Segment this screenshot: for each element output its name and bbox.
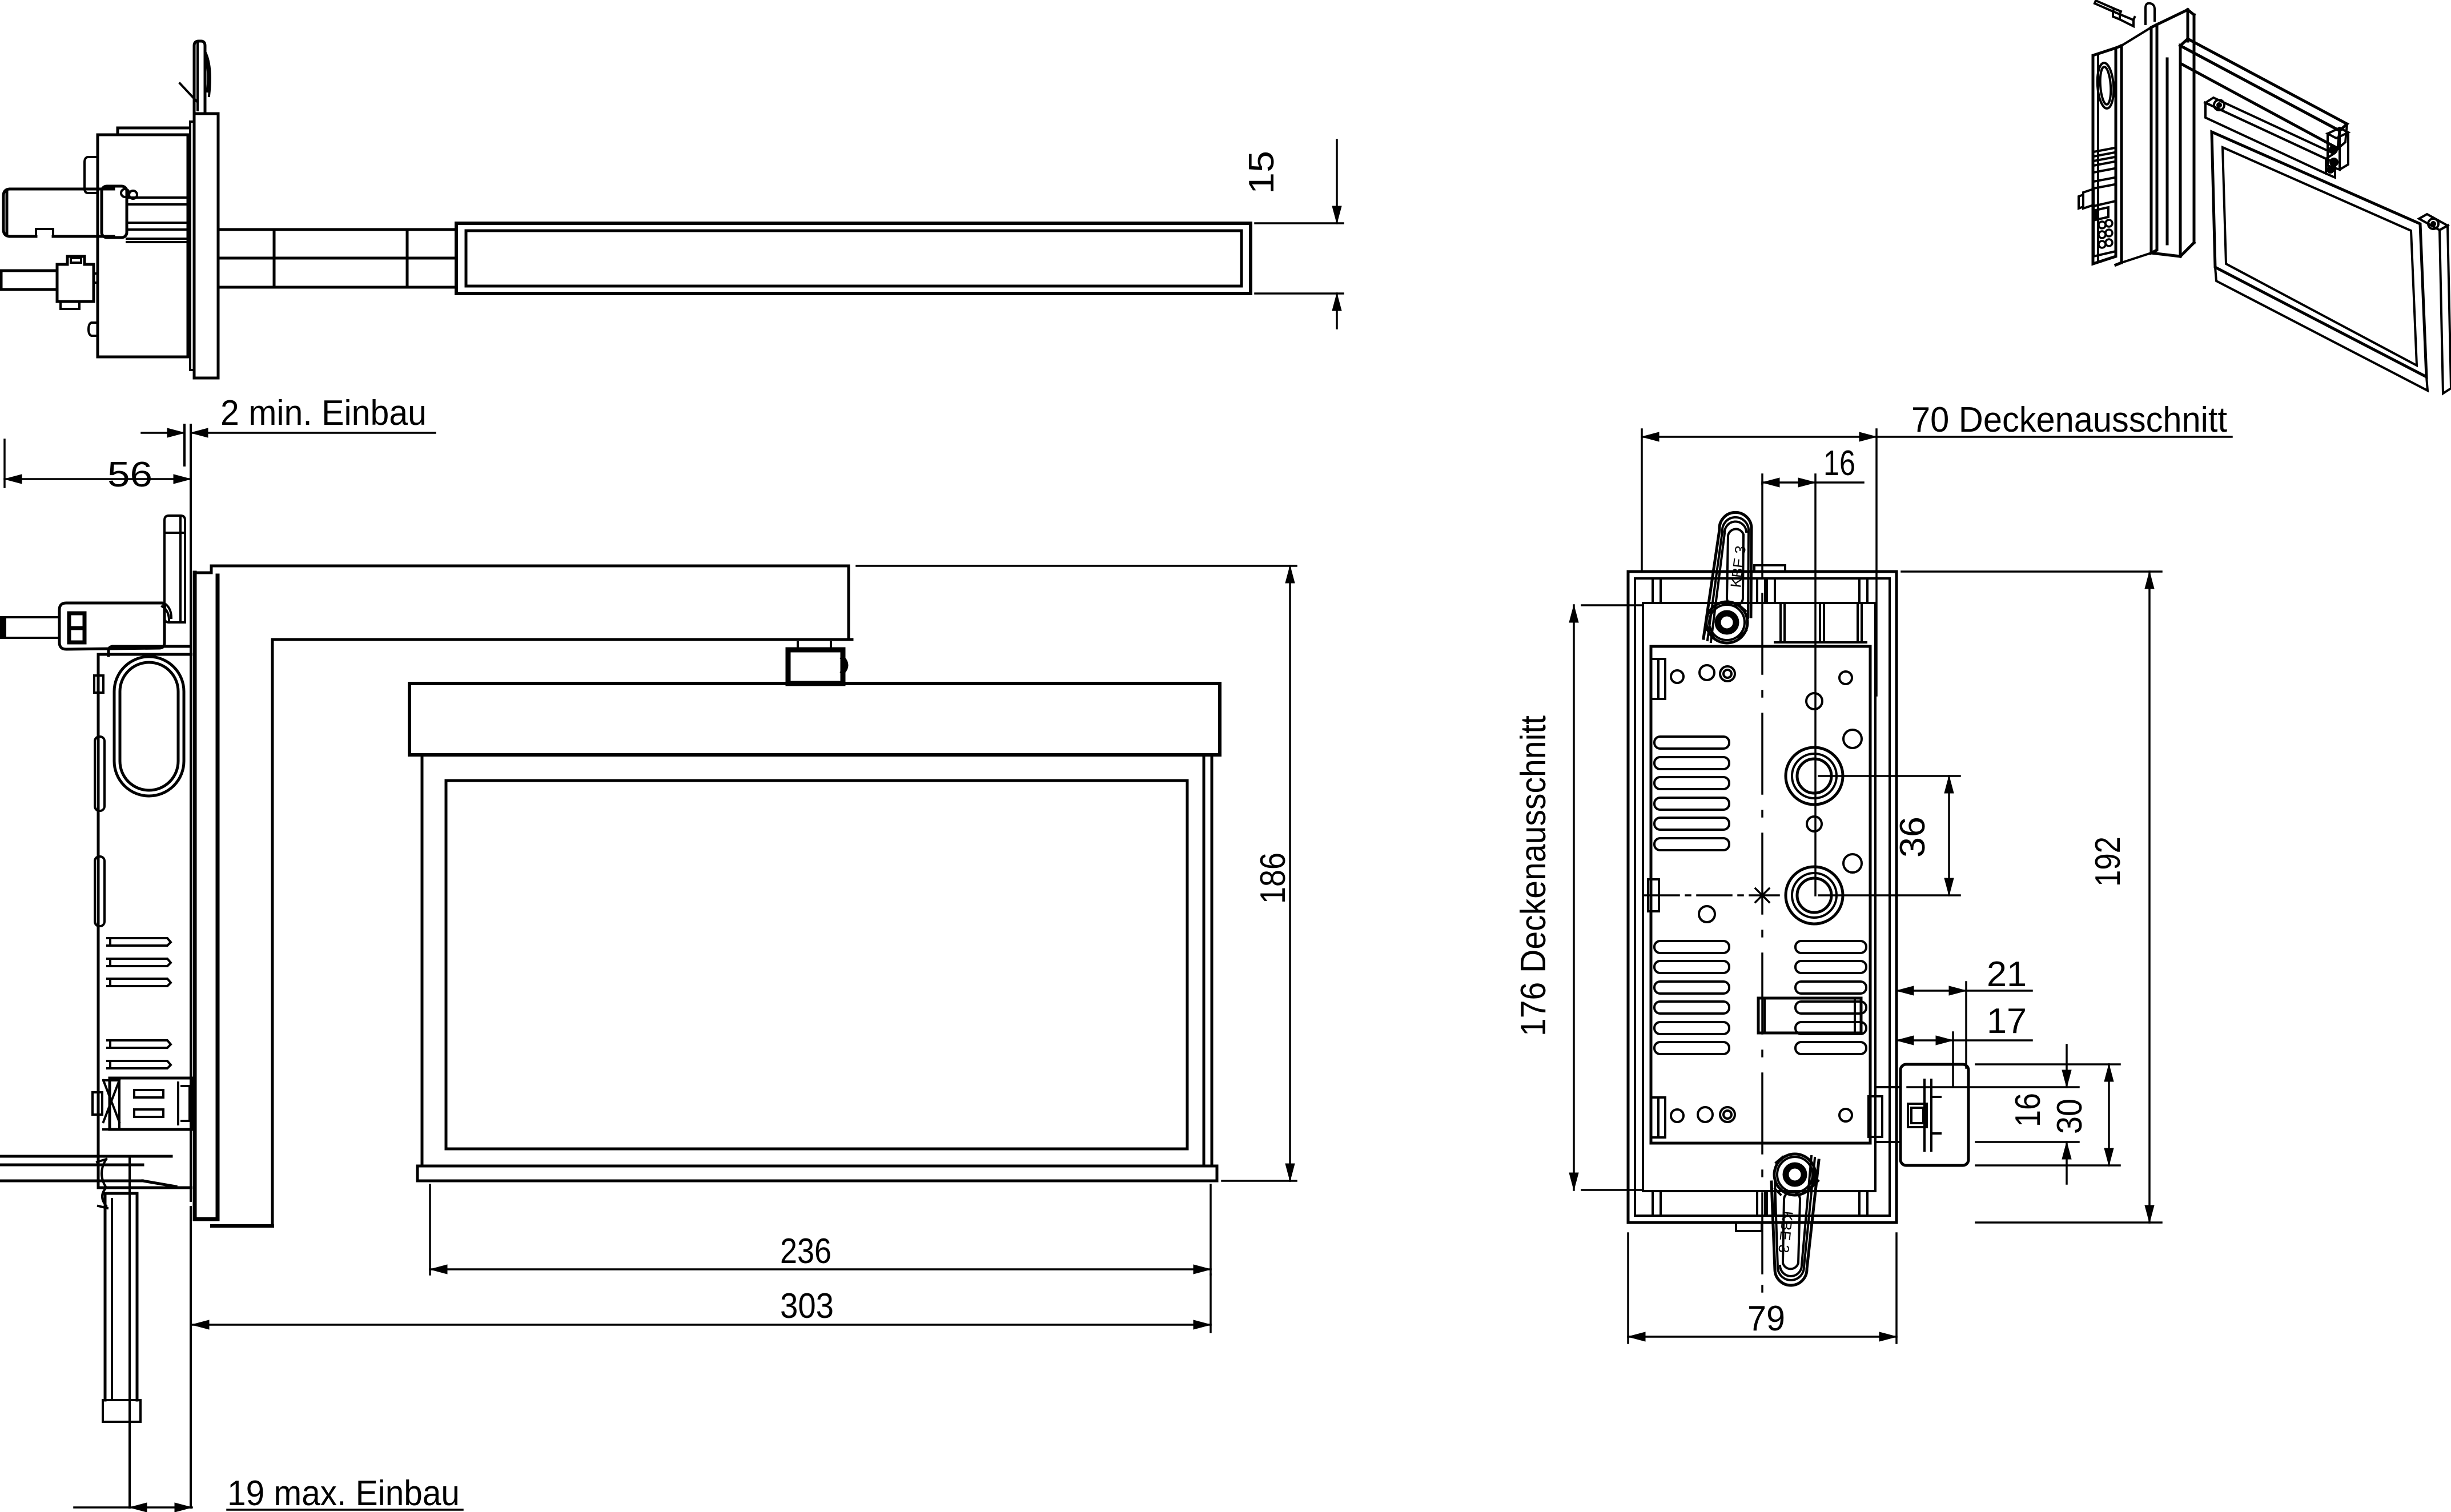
svg-text:19 max. Einbau: 19 max. Einbau bbox=[227, 1474, 460, 1512]
svg-text:79: 79 bbox=[1747, 1299, 1785, 1338]
svg-text:70 Deckenausschnitt: 70 Deckenausschnitt bbox=[1911, 400, 2227, 440]
svg-text:303: 303 bbox=[780, 1286, 834, 1326]
svg-text:17: 17 bbox=[1987, 1002, 2027, 1041]
svg-text:36: 36 bbox=[1893, 817, 1932, 858]
svg-text:15: 15 bbox=[1242, 151, 1281, 194]
svg-text:2 min. Einbau: 2 min. Einbau bbox=[220, 393, 427, 433]
svg-text:186: 186 bbox=[1253, 852, 1293, 904]
svg-text:30: 30 bbox=[2050, 1099, 2090, 1134]
svg-text:236: 236 bbox=[780, 1232, 831, 1271]
svg-text:16: 16 bbox=[2008, 1093, 2048, 1127]
svg-text:176 Deckenausschnitt: 176 Deckenausschnitt bbox=[1514, 715, 1553, 1036]
svg-text:16: 16 bbox=[1823, 444, 1855, 483]
svg-text:192: 192 bbox=[2088, 837, 2128, 887]
svg-text:21: 21 bbox=[1987, 955, 2027, 994]
svg-text:56: 56 bbox=[107, 455, 152, 494]
